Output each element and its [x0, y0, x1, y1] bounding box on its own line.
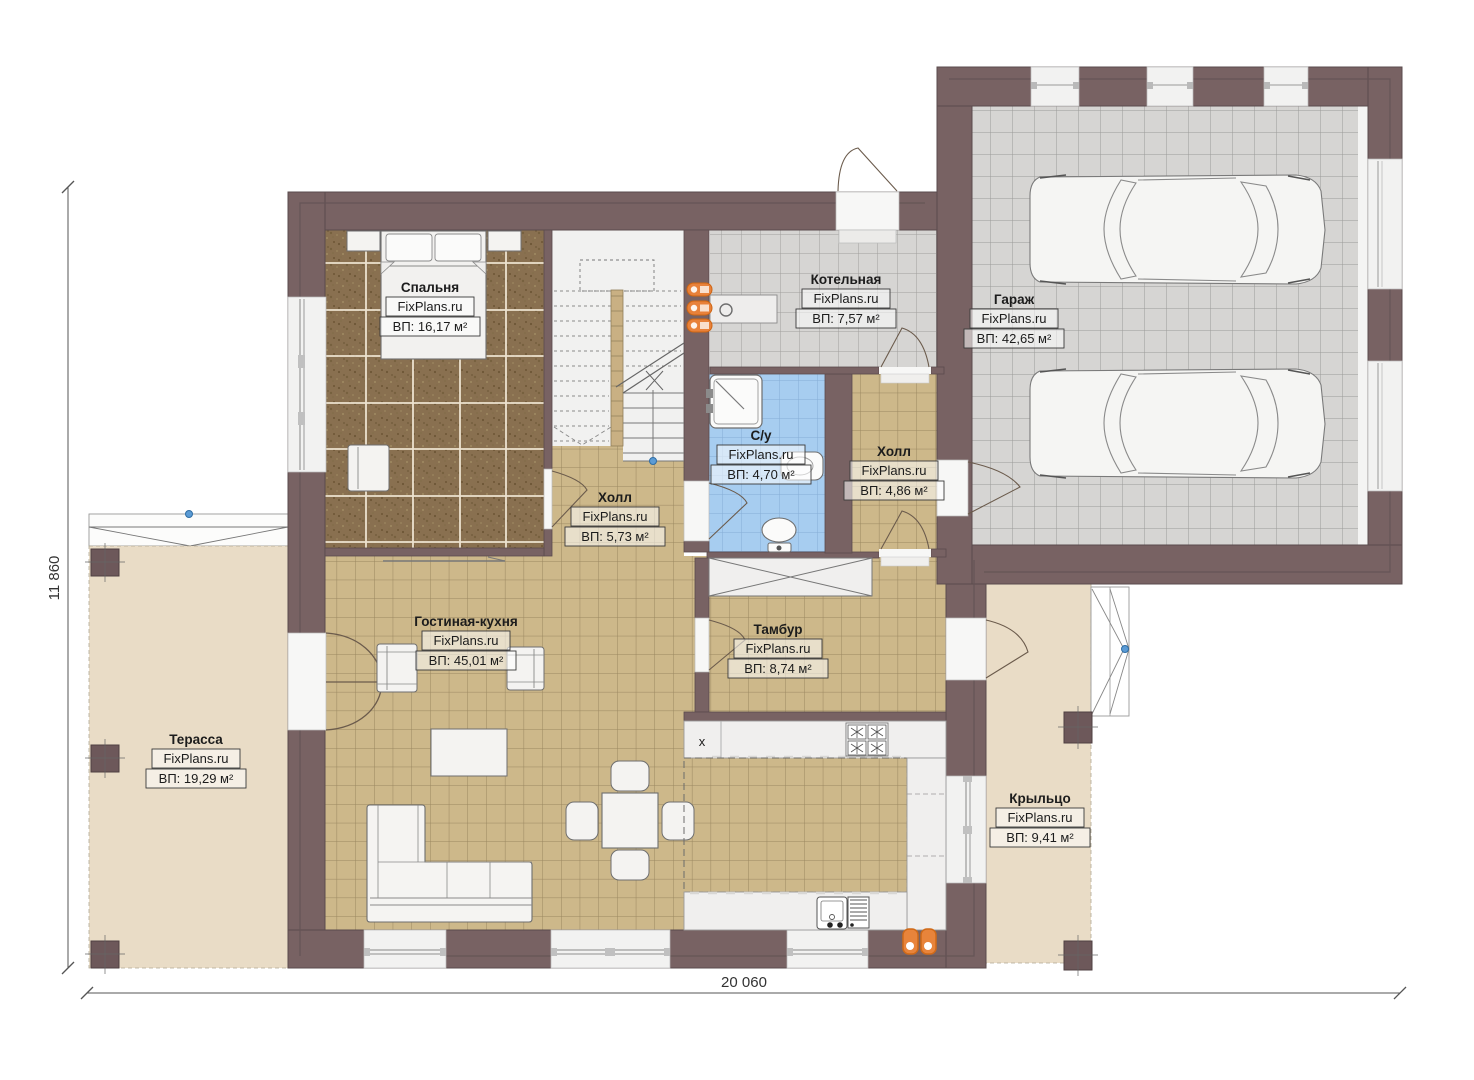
svg-text:Гостиная-кухня: Гостиная-кухня	[414, 614, 517, 629]
svg-text:ВП: 7,57 м²: ВП: 7,57 м²	[812, 311, 880, 326]
svg-text:ВП: 8,74 м²: ВП: 8,74 м²	[744, 661, 812, 676]
svg-text:FixPlans.ru: FixPlans.ru	[397, 299, 462, 314]
svg-text:ВП: 9,41 м²: ВП: 9,41 м²	[1006, 830, 1074, 845]
svg-text:Терасса: Терасса	[169, 732, 223, 747]
svg-text:ВП: 4,86 м²: ВП: 4,86 м²	[860, 483, 928, 498]
svg-text:ВП: 45,01 м²: ВП: 45,01 м²	[429, 653, 504, 668]
svg-text:20 060: 20 060	[721, 974, 767, 991]
svg-text:С/у: С/у	[750, 428, 772, 443]
svg-text:11 860: 11 860	[46, 556, 63, 601]
svg-text:Холл: Холл	[877, 444, 911, 459]
svg-text:Крыльцо: Крыльцо	[1009, 791, 1070, 806]
svg-text:FixPlans.ru: FixPlans.ru	[163, 751, 228, 766]
svg-text:FixPlans.ru: FixPlans.ru	[433, 633, 498, 648]
svg-text:ВП: 4,70 м²: ВП: 4,70 м²	[727, 467, 795, 482]
svg-text:Холл: Холл	[598, 490, 632, 505]
svg-text:FixPlans.ru: FixPlans.ru	[582, 509, 647, 524]
svg-text:ВП: 16,17 м²: ВП: 16,17 м²	[393, 319, 468, 334]
svg-text:Спальня: Спальня	[401, 280, 459, 295]
svg-text:Тамбур: Тамбур	[754, 622, 803, 637]
svg-text:FixPlans.ru: FixPlans.ru	[981, 311, 1046, 326]
svg-text:FixPlans.ru: FixPlans.ru	[1007, 810, 1072, 825]
svg-text:ВП: 19,29 м²: ВП: 19,29 м²	[159, 771, 234, 786]
svg-text:Гараж: Гараж	[994, 292, 1035, 307]
svg-text:FixPlans.ru: FixPlans.ru	[728, 447, 793, 462]
svg-text:ВП: 5,73 м²: ВП: 5,73 м²	[581, 529, 649, 544]
svg-text:Котельная: Котельная	[811, 272, 882, 287]
svg-text:FixPlans.ru: FixPlans.ru	[813, 291, 878, 306]
svg-text:FixPlans.ru: FixPlans.ru	[745, 641, 810, 656]
svg-text:ВП: 42,65 м²: ВП: 42,65 м²	[977, 331, 1052, 346]
svg-text:FixPlans.ru: FixPlans.ru	[861, 463, 926, 478]
svg-text:x: x	[699, 734, 706, 749]
